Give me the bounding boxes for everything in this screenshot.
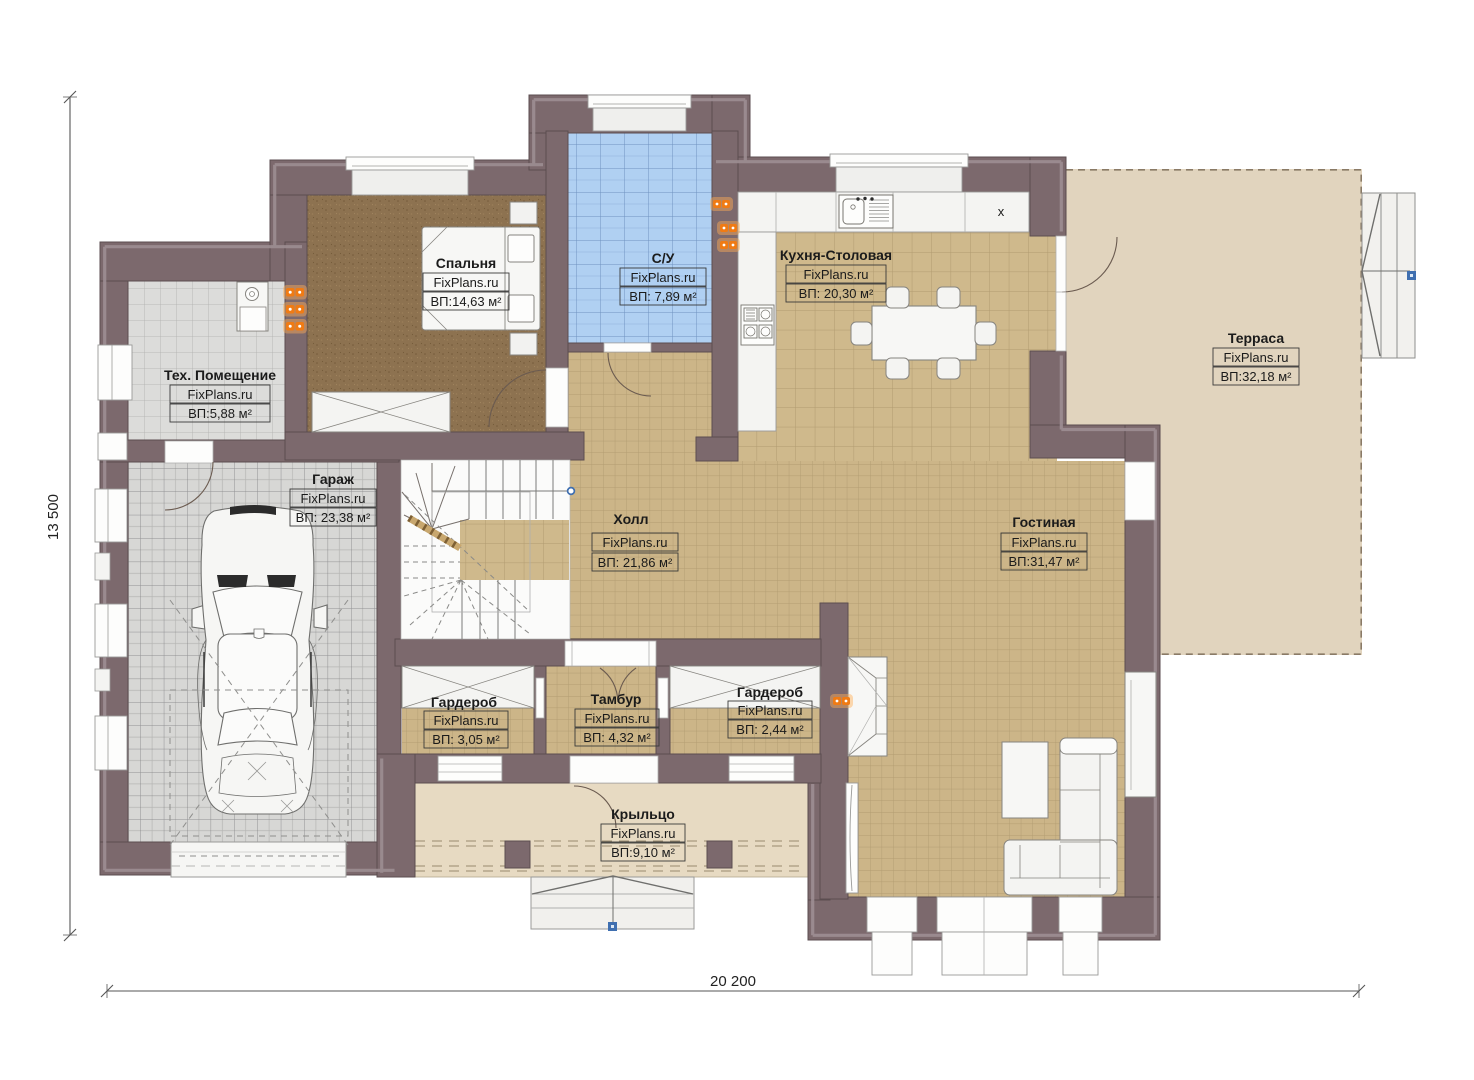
svg-text:ВП: 4,32 м²: ВП: 4,32 м² [583, 730, 651, 745]
svg-text:FixPlans.ru: FixPlans.ru [630, 270, 695, 285]
svg-text:FixPlans.ru: FixPlans.ru [1011, 535, 1076, 550]
svg-text:FixPlans.ru: FixPlans.ru [433, 275, 498, 290]
svg-text:Терраса: Терраса [1228, 330, 1284, 346]
svg-text:ВП:9,10 м²: ВП:9,10 м² [611, 845, 675, 860]
svg-text:FixPlans.ru: FixPlans.ru [300, 491, 365, 506]
svg-text:FixPlans.ru: FixPlans.ru [187, 387, 252, 402]
svg-text:Тех. Помещение: Тех. Помещение [164, 367, 276, 383]
svg-text:x: x [998, 204, 1005, 219]
svg-text:Спальня: Спальня [436, 255, 496, 271]
svg-text:20 200: 20 200 [710, 973, 756, 990]
svg-text:FixPlans.ru: FixPlans.ru [610, 826, 675, 841]
svg-text:ВП: 23,38 м²: ВП: 23,38 м² [296, 510, 371, 525]
svg-text:FixPlans.ru: FixPlans.ru [433, 713, 498, 728]
svg-text:ВП: 3,05 м²: ВП: 3,05 м² [432, 732, 500, 747]
svg-text:Гардероб: Гардероб [431, 694, 498, 710]
svg-text:FixPlans.ru: FixPlans.ru [1223, 350, 1288, 365]
svg-text:ВП: 20,30 м²: ВП: 20,30 м² [799, 286, 874, 301]
svg-text:FixPlans.ru: FixPlans.ru [803, 267, 868, 282]
svg-text:FixPlans.ru: FixPlans.ru [737, 703, 802, 718]
svg-text:Кухня-Столовая: Кухня-Столовая [780, 247, 892, 263]
svg-text:ВП: 21,86 м²: ВП: 21,86 м² [598, 555, 673, 570]
svg-text:Крыльцо: Крыльцо [611, 806, 675, 822]
svg-text:ВП:32,18 м²: ВП:32,18 м² [1220, 369, 1292, 384]
svg-text:Гостиная: Гостиная [1012, 514, 1075, 530]
svg-text:ВП: 7,89 м²: ВП: 7,89 м² [629, 289, 697, 304]
svg-text:Холл: Холл [613, 511, 648, 527]
svg-text:13 500: 13 500 [45, 494, 62, 540]
svg-text:С/У: С/У [652, 250, 675, 266]
svg-text:ВП: 2,44 м²: ВП: 2,44 м² [736, 722, 804, 737]
svg-text:Гараж: Гараж [312, 471, 355, 487]
svg-text:ВП:31,47 м²: ВП:31,47 м² [1008, 554, 1080, 569]
svg-text:FixPlans.ru: FixPlans.ru [584, 711, 649, 726]
svg-text:FixPlans.ru: FixPlans.ru [602, 535, 667, 550]
svg-text:ВП:5,88 м²: ВП:5,88 м² [188, 406, 252, 421]
svg-text:Гардероб: Гардероб [737, 684, 804, 700]
svg-text:ВП:14,63 м²: ВП:14,63 м² [430, 294, 502, 309]
svg-text:Тамбур: Тамбур [591, 691, 642, 707]
